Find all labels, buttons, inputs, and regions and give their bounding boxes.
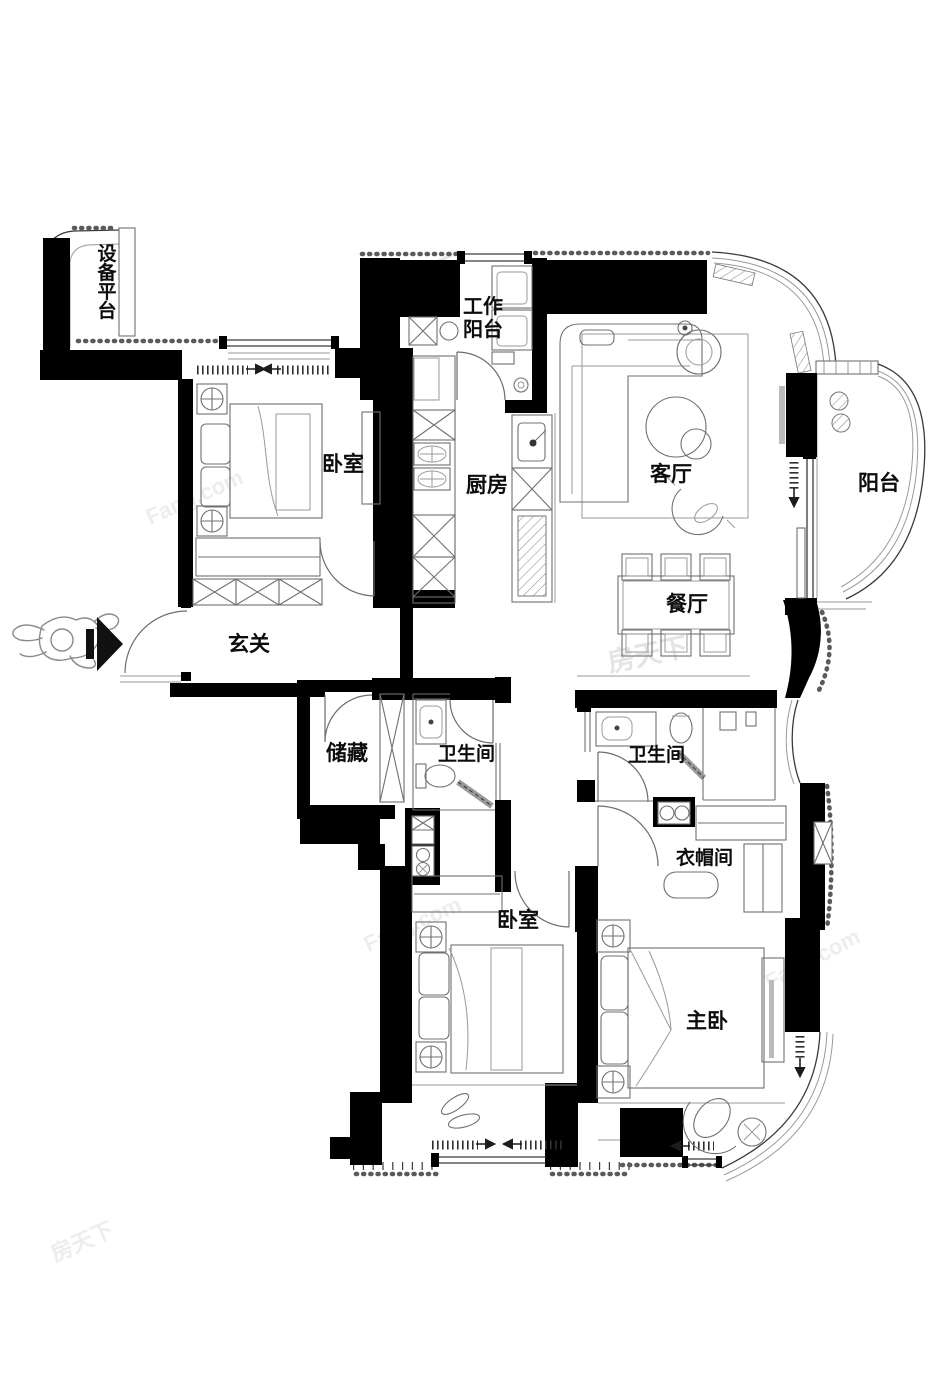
entry-door-arc [125, 611, 187, 673]
nightstand-lamp-icon [597, 1066, 630, 1098]
floor-drain-icon [514, 378, 528, 392]
wall-kitchen-south [378, 590, 455, 608]
wall-storage-north [310, 680, 380, 692]
window-post [431, 1153, 439, 1167]
faucet [534, 430, 546, 442]
fan-coil-icon [197, 506, 227, 536]
wall-workbalcony-south [505, 400, 547, 413]
plant-leaf [447, 1111, 481, 1131]
balcony-slider-leaf [797, 528, 805, 598]
coffee-table-small [681, 429, 711, 459]
bed-fold [258, 406, 278, 516]
tall-unit-hatch [518, 516, 546, 596]
wall-master-east [785, 918, 820, 1032]
toilet [425, 765, 455, 787]
bath2-fixture-small [746, 712, 756, 726]
wardrobe-box-x [236, 579, 279, 605]
room-label-bedroom-bottom: 卧室 [497, 908, 539, 932]
furniture-balcony [830, 392, 850, 432]
balcony-sill-lines [817, 602, 872, 609]
burner-cross [420, 471, 444, 487]
watermark-text: Fang.com [142, 464, 247, 529]
dining-chair-seat [704, 634, 726, 652]
master-suite-door [598, 806, 658, 866]
bedroom1-window [226, 340, 332, 346]
right-curve-wall-outer [792, 700, 800, 783]
bedroom2-window [437, 1157, 549, 1163]
room-label-storage: 储藏 [326, 741, 368, 765]
furniture-laundry-niche [412, 816, 434, 876]
wall-tv-balcony [786, 373, 817, 457]
wall-storage-south [297, 805, 395, 819]
bedroom1-curtain-sill [228, 353, 330, 359]
room-label-balcony: 阳台 [858, 471, 900, 495]
room-label-equipment-platform: 台 [97, 299, 116, 322]
lounge-chair-seat [691, 500, 720, 526]
rug [582, 334, 748, 518]
balcony-head-frame [816, 361, 878, 374]
wall-workbalcony-west [360, 258, 400, 400]
wardrobe-box-x [193, 579, 236, 605]
wall-bath1-ne-cap [495, 677, 511, 703]
wall-living-north-header [535, 260, 707, 314]
room-label-equipment-platform: 设 [97, 243, 116, 265]
pillow [601, 956, 628, 1010]
bed-runner [276, 414, 310, 510]
wall-platform-bottom [40, 350, 182, 380]
balcony-stool [830, 392, 848, 410]
wall-bath2-nw-cap [577, 700, 591, 712]
room-label-bathroom-right: 卫生间 [628, 743, 685, 766]
platform-ladder-hatch [119, 228, 135, 336]
basin-drain [615, 726, 620, 731]
room-label-cloakroom: 衣帽间 [676, 846, 733, 869]
tv [769, 980, 774, 1058]
window-post [682, 1156, 688, 1168]
fan-coil-icon [197, 384, 227, 414]
wall-below-storage [300, 817, 380, 844]
fan-coil-icon [416, 1042, 446, 1072]
bed-runner [491, 948, 522, 1070]
pillow [201, 424, 230, 464]
corner-insulation-hatch [790, 331, 811, 373]
room-label-living-room: 客厅 [650, 462, 692, 486]
bedroom1-door [320, 541, 374, 596]
entry-arrow-icon [97, 617, 123, 671]
sofa-pillow [580, 330, 614, 345]
entry-door-stub [181, 599, 191, 608]
bed-fold [449, 948, 468, 1070]
balcony-stool [832, 414, 850, 432]
wall-bath2-sw-cap [577, 780, 595, 802]
room-label-bathroom-left: 卫生间 [438, 742, 495, 765]
toilet [670, 713, 692, 743]
wall-dining-south [575, 690, 777, 708]
cabinet-x [413, 410, 455, 440]
chair-back [683, 1102, 736, 1154]
pillow [419, 953, 449, 995]
storage-door [325, 695, 372, 742]
basin-drain [429, 720, 434, 725]
nightstand-lamp-icon [597, 920, 630, 952]
furniture-storage [380, 694, 404, 802]
window-post [524, 251, 532, 264]
chair-seat [686, 1092, 737, 1145]
wall-bottom-left [350, 1092, 382, 1165]
dining-chair-seat [626, 558, 648, 576]
corner-insulation-hatch [713, 264, 755, 286]
floor-drain-center [518, 382, 524, 388]
pillow [601, 1012, 628, 1064]
room-label-kitchen: 厨房 [466, 473, 508, 497]
window-post [331, 336, 339, 349]
wall-bath1-north [372, 678, 511, 700]
sink-round [440, 322, 458, 340]
room-label-entry: 玄关 [228, 632, 270, 656]
window-post [716, 1156, 722, 1168]
dining-chair-seat [704, 558, 726, 576]
wall-master-southwest [620, 1108, 683, 1157]
bed-drape [631, 951, 671, 1086]
furniture-living [560, 321, 785, 535]
room-labels: 设 备 平 台 工作 阳台 卧室 厨房 客厅 阳台 餐厅 玄关 储藏 卫生间 卫… [96, 243, 900, 1033]
entry-threshold [120, 676, 181, 682]
fridge [414, 358, 439, 400]
ottoman [664, 872, 718, 898]
wall-bath1-se-cap [495, 800, 511, 892]
wardrobe-box-x [279, 579, 322, 605]
wall-kitchen-stub [400, 608, 413, 678]
entry-marker [13, 614, 123, 671]
wall-platform-left [43, 238, 70, 352]
side-table-x [744, 1124, 760, 1140]
floor-plan-drawing: 房天下 Fang.com Fang.com 房天下 Fang.com 房天下 [0, 0, 933, 1400]
tv [779, 386, 785, 444]
wall-bedroom2-west [380, 866, 412, 1103]
burner-cross [420, 446, 444, 462]
living-balcony-window [807, 457, 813, 598]
floor-plan-canvas: 房天下 Fang.com Fang.com 房天下 Fang.com 房天下 [0, 0, 933, 1400]
wall-bedroom1-west [178, 379, 193, 607]
cabinet-x [413, 515, 455, 557]
entry-arrow-bar [86, 629, 94, 659]
window-post [803, 452, 816, 459]
faucet-base [530, 440, 537, 447]
wall-bottom-left-small [330, 1137, 352, 1159]
room-label-master-bedroom: 主卧 [686, 1010, 728, 1033]
window-post [219, 336, 227, 349]
wall-divider [577, 932, 598, 1103]
workbalcony-window [462, 254, 528, 261]
round-armchair [677, 330, 721, 374]
room-label-work-balcony: 工作 [463, 294, 503, 318]
bath2-fixture [720, 712, 736, 730]
wall-storage-west [297, 680, 310, 817]
watermark-text: 房天下 [47, 1217, 117, 1267]
storage-cabinet-x [380, 694, 404, 802]
shelf [492, 352, 514, 364]
dining-chair-seat [665, 558, 687, 576]
wall-divider-top [575, 866, 598, 932]
wall-right-scurve [783, 600, 821, 698]
bath1-door [450, 700, 493, 743]
pillow [419, 997, 449, 1039]
room-label-work-balcony: 阳台 [463, 317, 503, 341]
entry-door-stub [181, 672, 191, 681]
room-label-equipment-platform: 备 [96, 261, 117, 284]
furniture-bath2 [596, 712, 756, 824]
window-post [457, 251, 465, 264]
room-label-bedroom-left: 卧室 [322, 452, 364, 476]
round-armchair-seat [686, 339, 712, 365]
cabinet-x [409, 317, 437, 345]
cabinet-x [512, 468, 552, 510]
wall-workbalcony-northwest [398, 260, 460, 317]
floor-lamp-center [683, 326, 688, 331]
bottom-scallop [356, 1165, 716, 1174]
room-label-dining-room: 餐厅 [666, 592, 708, 616]
window-post [546, 1153, 554, 1167]
workbalcony-door [457, 352, 505, 400]
room-label-equipment-platform: 平 [97, 282, 116, 303]
coffee-table-large [646, 397, 706, 457]
